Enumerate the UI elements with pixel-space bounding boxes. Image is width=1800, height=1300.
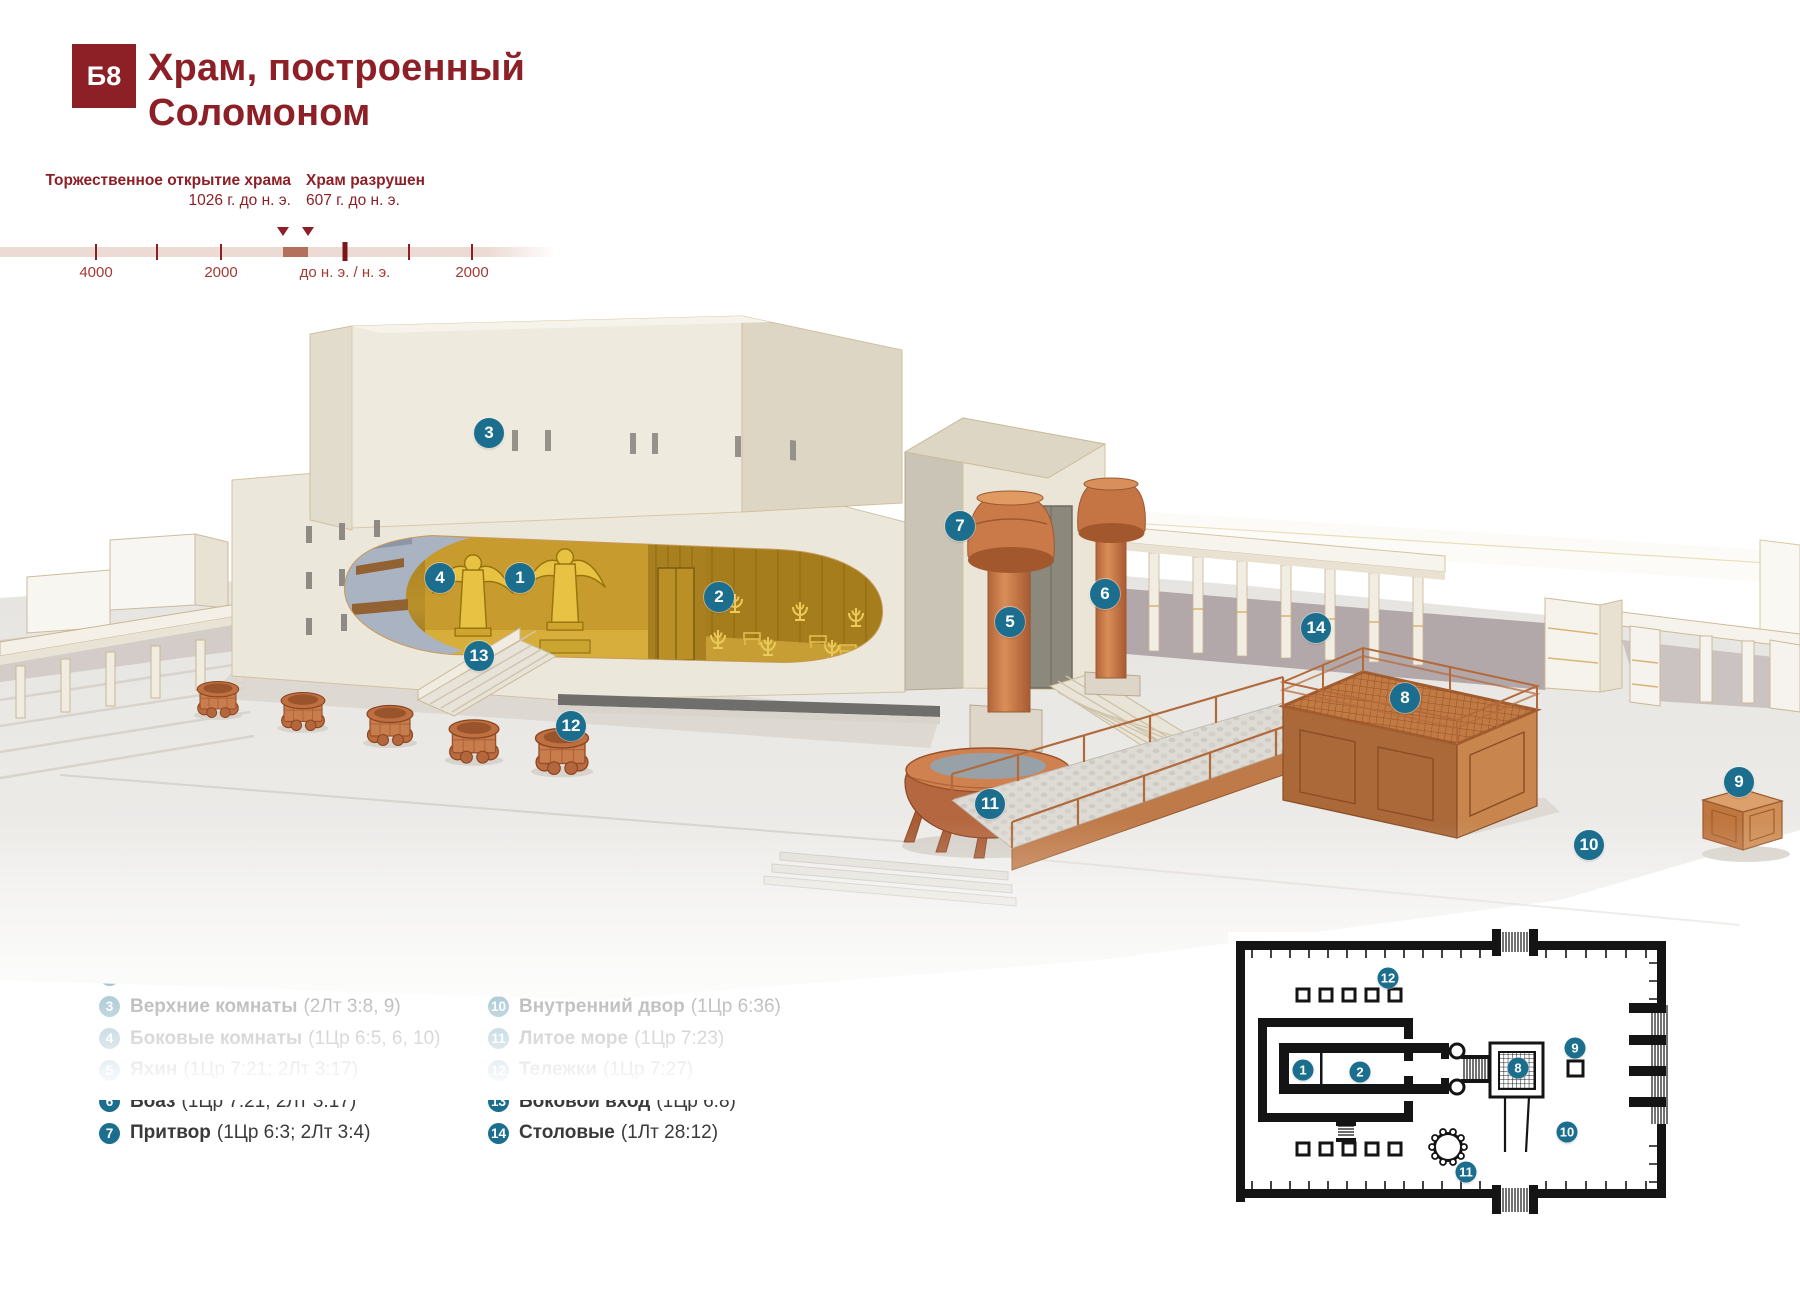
plan-molten-sea (1429, 1129, 1467, 1165)
upper-rooms (310, 316, 902, 530)
page: { "header": { "badge": "Б8", "title_line… (0, 0, 1800, 1300)
temple-illustration (0, 0, 1800, 1300)
floor-plan (1228, 929, 1674, 1224)
